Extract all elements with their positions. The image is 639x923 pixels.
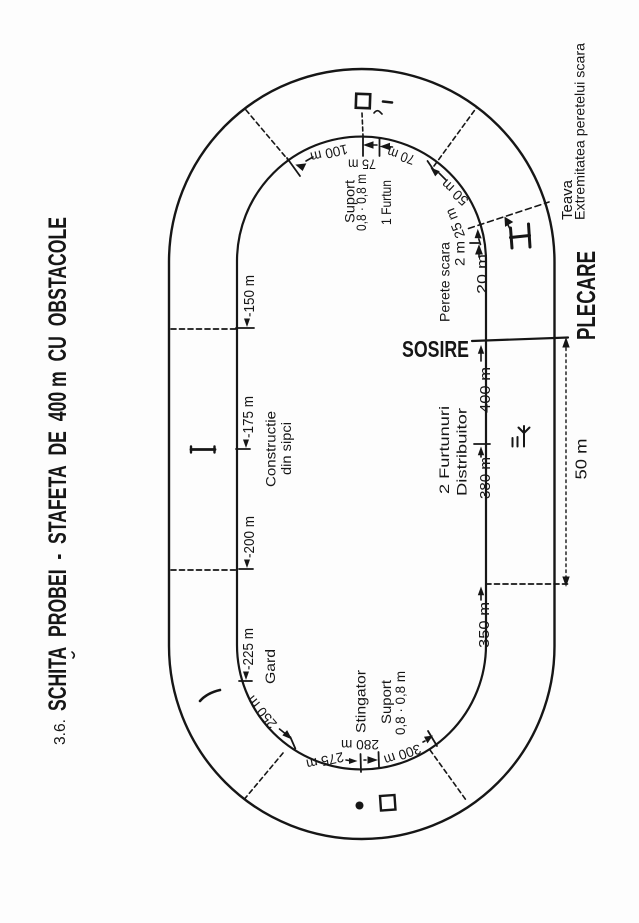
svg-text:280 m: 280 m — [341, 737, 379, 753]
svg-text:400 m: 400 m — [478, 367, 494, 413]
svg-text:25 m: 25 m — [442, 206, 468, 241]
svg-text:PLECARE: PLECARE — [571, 251, 601, 340]
svg-text:din sipci: din sipci — [278, 422, 294, 475]
svg-text:75 m: 75 m — [348, 157, 376, 173]
svg-text:350 m: 350 m — [477, 602, 493, 648]
svg-text:-175 m: -175 m — [241, 396, 257, 438]
svg-text:SOSIRE: SOSIRE — [402, 336, 469, 362]
svg-text:250 m: 250 m — [243, 693, 280, 732]
svg-text:2 Furtunuri: 2 Furtunuri — [436, 406, 452, 494]
svg-text:Extremitatea peretelui scara: Extremitatea peretelui scara — [572, 43, 588, 220]
svg-text:1 Furtun: 1 Furtun — [378, 180, 394, 225]
svg-text:Gard: Gard — [262, 649, 278, 684]
svg-text:Constructie: Constructie — [263, 411, 279, 487]
svg-text:-225 m: -225 m — [241, 628, 257, 670]
svg-text:Distribuitor: Distribuitor — [454, 408, 470, 496]
svg-text:300 m: 300 m — [382, 741, 423, 768]
svg-text:2 m: 2 m — [452, 241, 468, 266]
svg-text:50 m: 50 m — [574, 439, 591, 480]
svg-text:275 m: 275 m — [305, 749, 345, 773]
svg-text:20 m: 20 m — [475, 254, 491, 294]
svg-text:-150 m: -150 m — [242, 275, 258, 317]
svg-text:-200 m: -200 m — [242, 516, 258, 558]
svg-text:Perete scara: Perete scara — [437, 242, 453, 322]
svg-text:0,8 · 0,8 m: 0,8 · 0,8 m — [392, 671, 408, 735]
svg-text:0,8 · 0,8 m: 0,8 · 0,8 m — [353, 174, 369, 231]
svg-text:SCHITA PROBEI - STAFETA DE: SCHITA PROBEI - STAFETA DE 400 m CU OBST… — [44, 217, 72, 711]
svg-text:380 m: 380 m — [478, 457, 494, 499]
svg-text:3.6.: 3.6. — [52, 719, 69, 745]
svg-text:Stingator: Stingator — [353, 670, 369, 733]
